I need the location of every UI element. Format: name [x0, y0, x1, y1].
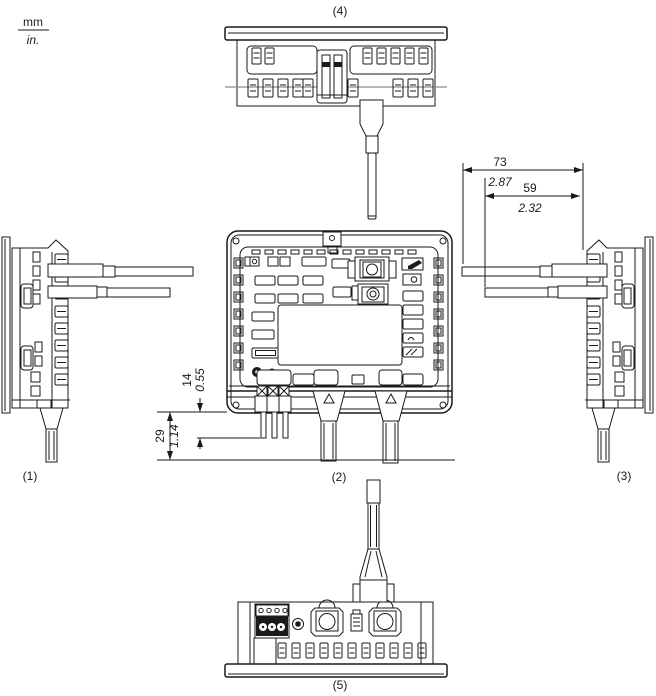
bottom-view-label: (5) [333, 678, 348, 692]
terminal-wire [272, 412, 277, 438]
terminal-block [255, 386, 291, 438]
rear-cable-left [313, 391, 345, 461]
mounting-clamp [317, 50, 347, 103]
right-view-label: (3) [617, 469, 632, 483]
bottom-view: (5) [225, 480, 447, 692]
bezel-left-view [2, 237, 10, 413]
power-terminal-block [254, 604, 289, 664]
mid-connector [351, 610, 362, 631]
unit-in-label: in. [27, 33, 40, 47]
dim-73-in: 2.87 [487, 175, 513, 189]
top-cable [360, 100, 383, 219]
bottom-gland-left [311, 600, 343, 636]
dim-29-mm: 29 [153, 429, 167, 443]
rear-cable-right [375, 391, 407, 463]
corner-screw [440, 238, 446, 244]
dim-14-mm: 14 [180, 373, 194, 387]
drawing-svg: mm in. (4) [0, 0, 656, 696]
unit-indicator: mm in. [18, 15, 49, 47]
corner-screw [440, 402, 446, 408]
port-marking-icon [245, 257, 259, 266]
dim-73-mm: 73 [493, 155, 507, 169]
dimension-drawing: mm in. (4) [0, 0, 656, 696]
terminal-wire [283, 412, 288, 438]
top-view-label: (4) [333, 4, 348, 18]
cable-gland-lower [352, 284, 388, 304]
top-view: (4) [225, 4, 447, 219]
right-bottom-cable [592, 400, 618, 462]
unit-mm-label: mm [23, 15, 43, 29]
bezel-bottom-view [225, 664, 447, 677]
corner-screw [233, 238, 239, 244]
ground-screw [293, 619, 304, 630]
left-lower-cable [48, 286, 170, 298]
right-marking-column [402, 258, 423, 357]
right-side-view: (3) [462, 237, 653, 483]
dim-14-in: 0.55 [193, 368, 207, 392]
dim-59-in: 2.32 [517, 201, 542, 215]
label-plate [278, 305, 402, 365]
cable-gland-upper [348, 257, 396, 281]
left-bottom-cable [37, 400, 63, 462]
right-lower-cable [485, 286, 607, 298]
bottom-cable [353, 480, 394, 602]
left-side-view: (1) [2, 237, 193, 483]
corner-screw [233, 402, 239, 408]
left-view-label: (1) [23, 469, 38, 483]
bottom-gland-right [369, 600, 401, 636]
dim-29-in: 1.14 [167, 424, 181, 448]
dim-59-mm: 59 [523, 181, 537, 195]
terminal-wire [261, 412, 266, 438]
rear-view: (2) [227, 231, 452, 484]
right-upper-cable [462, 264, 607, 277]
left-upper-cable [48, 264, 193, 277]
bezel-right-view [645, 237, 653, 413]
rear-view-label: (2) [332, 470, 347, 484]
